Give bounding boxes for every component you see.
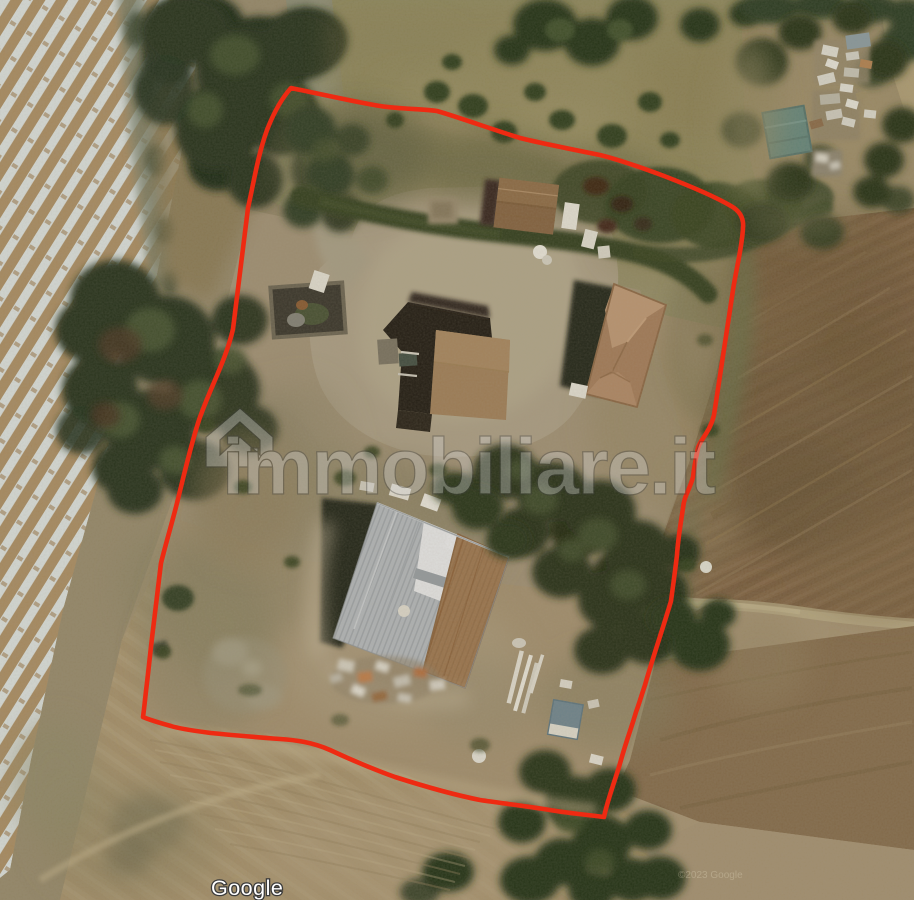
- svg-text:©2023 Google: ©2023 Google: [678, 870, 743, 881]
- svg-text:Google: Google: [211, 876, 283, 900]
- svg-text:immobiliare.it: immobiliare.it: [222, 422, 715, 511]
